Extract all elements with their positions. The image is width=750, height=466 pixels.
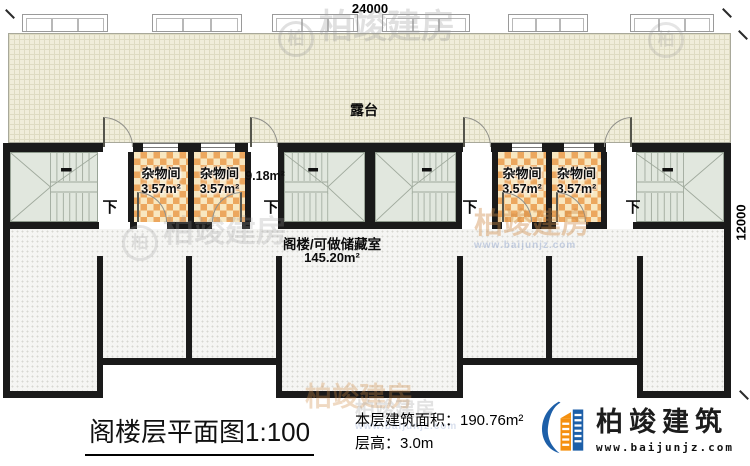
brand-url: www.baijunjz.com	[596, 441, 734, 454]
staircase	[10, 152, 98, 222]
floor-plan-canvas: 24000 12000 露台 杂物间 3.57m² 杂物间 3.57m² 杂物间…	[0, 0, 750, 466]
brand-logo: 柏竣建筑 www.baijunjz.com	[536, 398, 734, 456]
wall	[492, 222, 502, 229]
wall	[128, 152, 134, 222]
wall	[633, 222, 731, 229]
wall	[637, 256, 643, 398]
wall	[186, 256, 192, 365]
dimension-tick	[5, 9, 15, 19]
wall	[601, 152, 607, 222]
wall	[167, 222, 212, 229]
stair-down-label: 下	[98, 196, 122, 217]
wall	[457, 256, 463, 398]
staircase	[375, 152, 456, 222]
wall	[242, 222, 250, 229]
stair-down-label: 下	[621, 196, 645, 217]
building-notch	[463, 365, 637, 400]
wall	[130, 222, 137, 229]
room-name: 杂物间	[141, 163, 180, 182]
plan-scale: 1:100	[245, 417, 310, 447]
wall	[278, 143, 463, 152]
staircase	[636, 152, 724, 222]
window	[564, 143, 594, 152]
railing-segment	[152, 14, 242, 32]
wall	[491, 143, 512, 152]
floor-area-text: 本层建筑面积：190.76m²	[355, 409, 523, 432]
railing-segment	[272, 14, 358, 32]
wall	[3, 222, 99, 229]
wall	[632, 143, 731, 152]
wall	[178, 143, 201, 152]
railing-segment	[22, 14, 108, 32]
wall	[365, 152, 375, 222]
railing-segment	[630, 14, 714, 32]
wall	[3, 143, 10, 398]
wall	[637, 391, 731, 398]
room-name: 杂物间	[502, 163, 541, 182]
wall	[97, 256, 103, 398]
room-name: 杂物间	[200, 163, 239, 182]
railing-segment	[382, 14, 470, 32]
wall	[546, 256, 552, 365]
room-name: 杂物间	[557, 163, 596, 182]
stair-down-label: 下	[259, 196, 283, 217]
wall	[276, 256, 282, 398]
wall	[133, 143, 143, 152]
dimension-tick	[739, 390, 749, 400]
attic-area-label: 145.20m²	[252, 250, 412, 265]
staircase	[284, 152, 365, 222]
wall	[532, 222, 556, 229]
wall	[492, 152, 498, 222]
right-dimension-label: 12000	[734, 201, 749, 245]
railing-segment	[508, 14, 588, 32]
wall	[724, 143, 731, 398]
dimension-tick	[738, 30, 748, 40]
wall	[278, 222, 462, 229]
terrace-label: 露台	[336, 100, 392, 120]
corridor-area-label: 9.18m²	[237, 169, 293, 183]
wall	[235, 143, 248, 152]
window	[512, 143, 542, 152]
wall	[97, 358, 282, 365]
wall	[457, 358, 643, 365]
floor-height-text: 层高：3.0m	[355, 432, 523, 455]
window	[143, 143, 178, 152]
stair-down-label: 下	[458, 196, 482, 217]
wall	[546, 152, 552, 222]
building-notch	[103, 365, 276, 400]
brand-name: 柏竣建筑	[596, 400, 734, 439]
wall	[276, 391, 463, 398]
wall	[586, 222, 607, 229]
wall	[3, 143, 103, 152]
brand-logo-icon	[536, 398, 592, 456]
wall	[188, 152, 194, 222]
plan-title-text: 阁楼层平面图	[89, 417, 245, 447]
plan-stats: 本层建筑面积：190.76m² 层高：3.0m	[355, 409, 523, 456]
wall	[3, 391, 103, 398]
wall	[542, 143, 564, 152]
plan-title: 阁楼层平面图1:100	[85, 412, 314, 456]
wall	[245, 152, 251, 222]
dimension-tick	[722, 8, 732, 18]
window	[201, 143, 235, 152]
